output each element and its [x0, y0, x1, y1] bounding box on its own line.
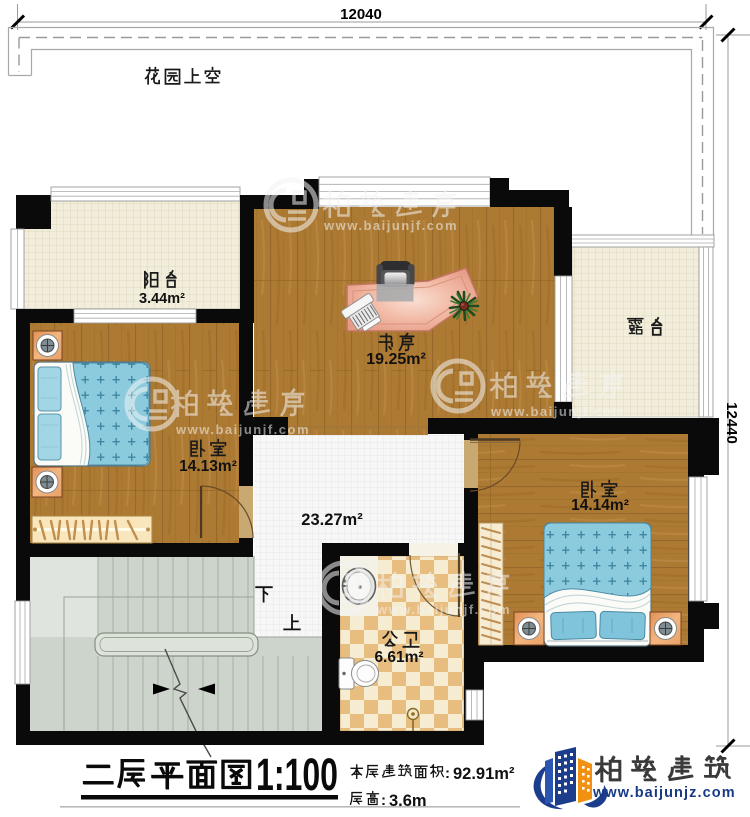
svg-text:12440: 12440	[723, 402, 740, 444]
svg-text:www.baijunjf.com: www.baijunjf.com	[323, 218, 458, 233]
svg-text:www.baijunjf.com: www.baijunjf.com	[376, 602, 511, 617]
svg-text:23.27m²: 23.27m²	[301, 511, 363, 529]
svg-text:92.91m²: 92.91m²	[453, 765, 515, 783]
svg-text:6.61m²: 6.61m²	[374, 649, 423, 666]
svg-text:14.13m²: 14.13m²	[179, 458, 237, 475]
svg-text::: :	[445, 765, 450, 782]
svg-text:1:100: 1:100	[256, 749, 338, 800]
svg-text:www.baijunjf.com: www.baijunjf.com	[175, 422, 310, 437]
svg-text::: :	[381, 792, 386, 809]
svg-text:3.6m: 3.6m	[389, 792, 427, 810]
svg-text:19.25m²: 19.25m²	[366, 351, 426, 368]
svg-text:3.44m²: 3.44m²	[139, 291, 185, 307]
svg-text:14.14m²: 14.14m²	[571, 497, 629, 514]
svg-text:www.baijunjz.com: www.baijunjz.com	[592, 785, 736, 801]
svg-text:12040: 12040	[340, 6, 382, 23]
svg-text:www.baijunjf.com: www.baijunjf.com	[490, 404, 625, 419]
